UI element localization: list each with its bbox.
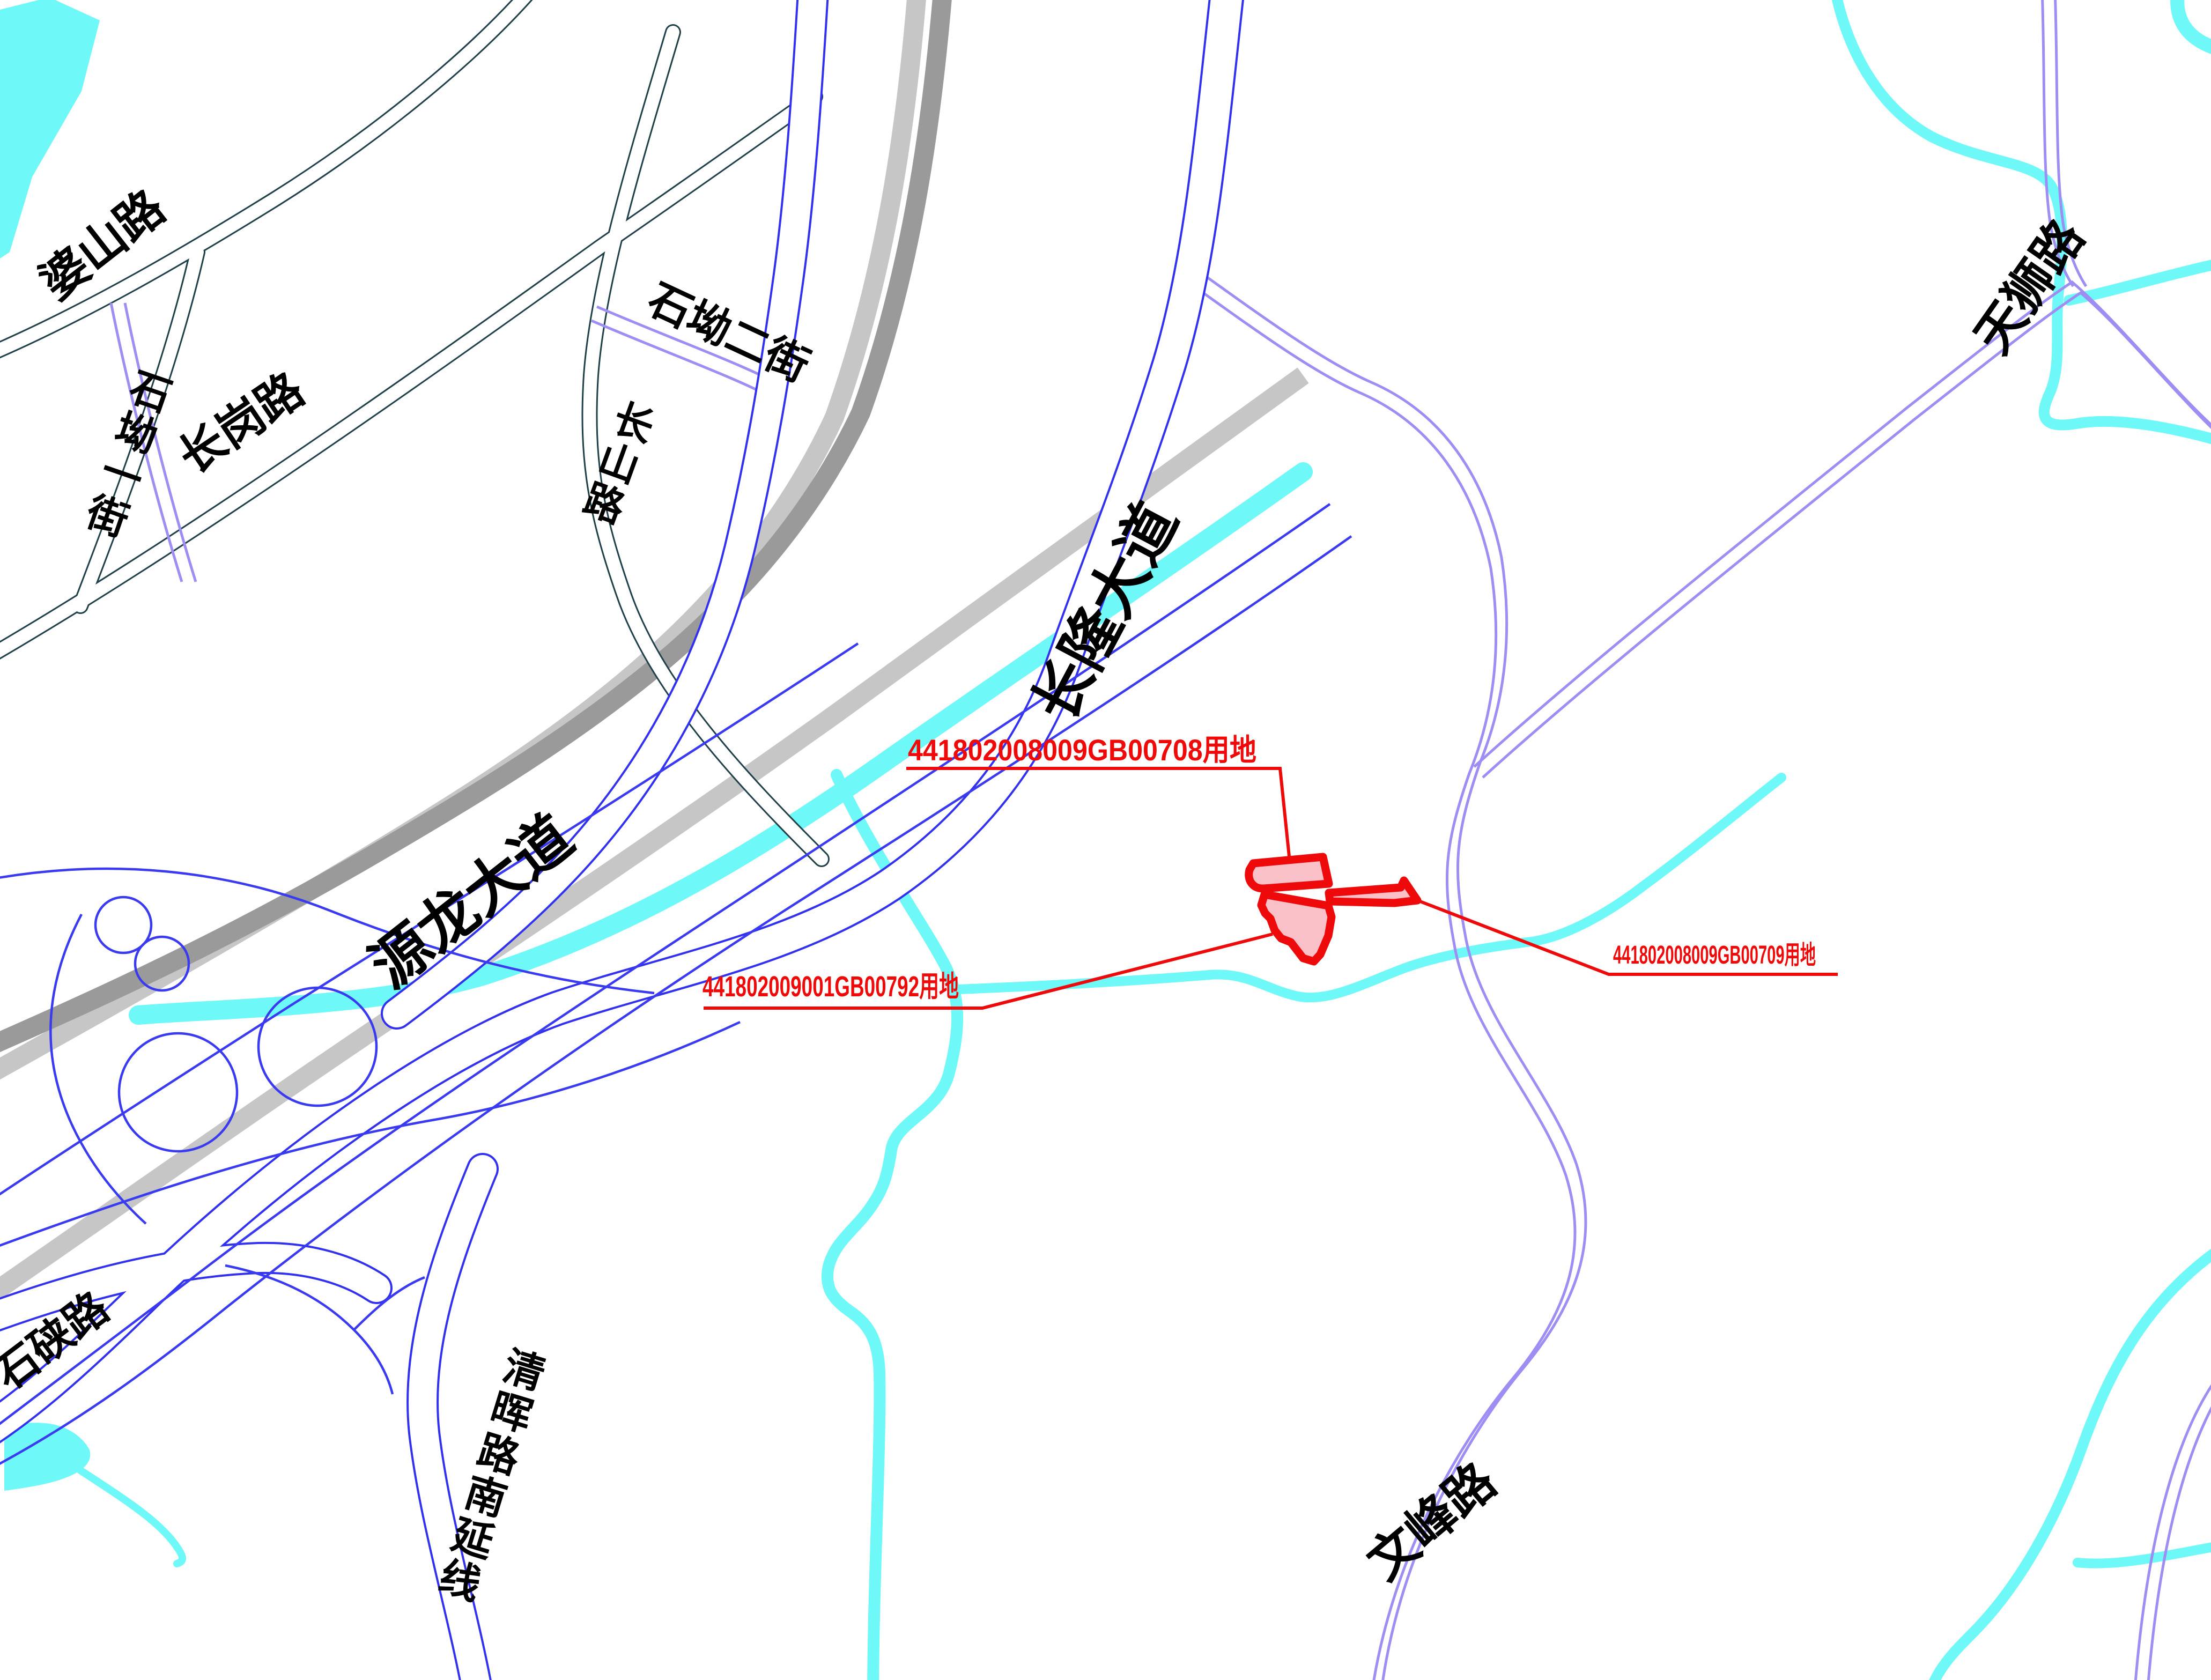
parcel-label-709: 441802008009GB00709用地 bbox=[1613, 941, 1816, 969]
map-canvas: 婆山路 石坳一街 长岗路 石坳二街 长山路 长隆大道 源龙大道 石硖路 清晖路南… bbox=[0, 0, 2211, 1680]
river-top-right bbox=[1833, 0, 2211, 443]
pond-bottom-left bbox=[4, 1423, 90, 1491]
road-changgang-fill bbox=[0, 97, 815, 660]
pond-top-left bbox=[0, 0, 100, 258]
river-top-right-corner bbox=[2177, 0, 2211, 51]
road-label-wenfeng: 文峰路 bbox=[1357, 1453, 1506, 1590]
parcel-label-708: 441802008009GB00708用地 bbox=[908, 733, 1256, 767]
road-bottom-right-corner bbox=[2134, 1373, 2211, 1680]
river-bottom-right-branch bbox=[2077, 1544, 2211, 1564]
water-features bbox=[0, 0, 2211, 1680]
ramp-arc-3 bbox=[50, 914, 146, 1224]
ramp-loop-3 bbox=[119, 1033, 237, 1151]
parcel-792 bbox=[1261, 894, 1332, 961]
parcel-709 bbox=[1329, 880, 1417, 903]
pond-outlet-stream bbox=[80, 1470, 182, 1564]
road-tianshi bbox=[1474, 282, 2211, 778]
river-top-right-east-branch bbox=[2069, 262, 2211, 300]
parcel-label-792: 441802009001GB00792用地 bbox=[703, 971, 959, 1003]
parcel-708 bbox=[1249, 857, 1329, 889]
river-bottom-right bbox=[1928, 1244, 2211, 1680]
